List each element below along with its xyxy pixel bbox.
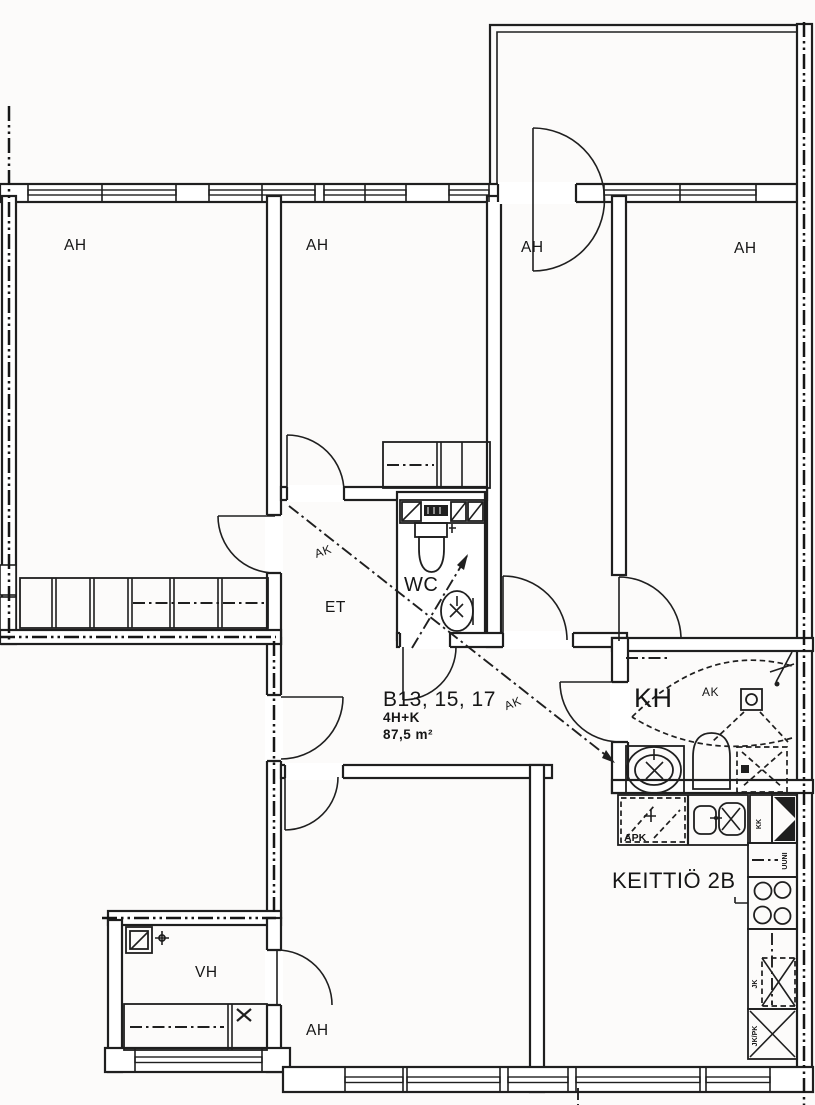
closet-ah2 — [383, 442, 490, 488]
stove — [735, 877, 797, 929]
floor-plan-sheet: KK UUNI JK JK — [0, 0, 815, 1105]
apartment-layout: 4H+K — [383, 710, 420, 725]
oven-cabinet: UUNI — [748, 843, 797, 877]
wall-ah1-hall — [267, 196, 281, 644]
vh-lamp-symbol — [155, 931, 169, 945]
vh-x-symbol — [237, 1009, 251, 1021]
room-label-kh: KH — [634, 683, 673, 713]
wardrobe-ah1 — [20, 578, 268, 628]
apartment-area: 87,5 m² — [383, 727, 433, 742]
door-vh — [277, 950, 332, 1005]
kh-top-wall — [612, 638, 813, 651]
vh-hatch-window — [126, 927, 152, 953]
door-ah2 — [287, 435, 344, 492]
shower-head-symbol — [770, 652, 794, 687]
floor-drain — [741, 689, 762, 710]
room-label-ah-1: AH — [64, 237, 87, 254]
wall-ah2-ah3 — [487, 196, 501, 647]
drying-cabinet-label: KK — [756, 819, 763, 829]
oven-label: UUNI — [782, 852, 789, 869]
fridge-freezer-label: JK/PK — [752, 1026, 759, 1047]
room-label-kitchen: KEITTIÖ 2B — [612, 868, 736, 893]
tall-cabinet — [772, 795, 797, 843]
vh-top-wall — [108, 911, 281, 925]
door-ah4 — [619, 577, 681, 641]
room-label-ah-5: AH — [306, 1022, 329, 1039]
wardrobe-vh — [124, 1004, 267, 1050]
apartment-units: B13, 15, 17 — [383, 688, 496, 711]
fridge-label: JK — [752, 980, 759, 989]
room-label-ah-2: AH — [306, 237, 329, 254]
fridge-freezer: JK/PK — [748, 1009, 797, 1059]
ak-label-kh: AK — [702, 685, 719, 699]
wall-ah-kitchen — [530, 765, 544, 1092]
ak-label-2: AK — [502, 694, 523, 713]
room-label-vh: VH — [195, 964, 218, 981]
door-ah3 — [503, 576, 567, 640]
kh-fixtures — [626, 652, 794, 793]
ak-label-1: AK — [313, 542, 334, 561]
door-entrance — [281, 697, 343, 759]
room-label-et: ET — [325, 599, 346, 616]
drying-cabinet: KK — [750, 795, 772, 843]
floor-plan-drawing: KK UUNI JK JK — [0, 0, 815, 1105]
wall-ah3-ah4 — [612, 196, 626, 575]
kitchen-sink — [694, 803, 745, 835]
kitchen-lower-cabinet: JK — [748, 929, 797, 1009]
room-label-wc: WC — [404, 574, 438, 596]
room-label-ah-3: AH — [521, 239, 544, 256]
room-label-ah-4: AH — [734, 240, 757, 257]
dishwasher-label: APK — [624, 832, 647, 844]
balcony-walls — [490, 25, 810, 197]
door-bottom-ah — [285, 777, 338, 830]
